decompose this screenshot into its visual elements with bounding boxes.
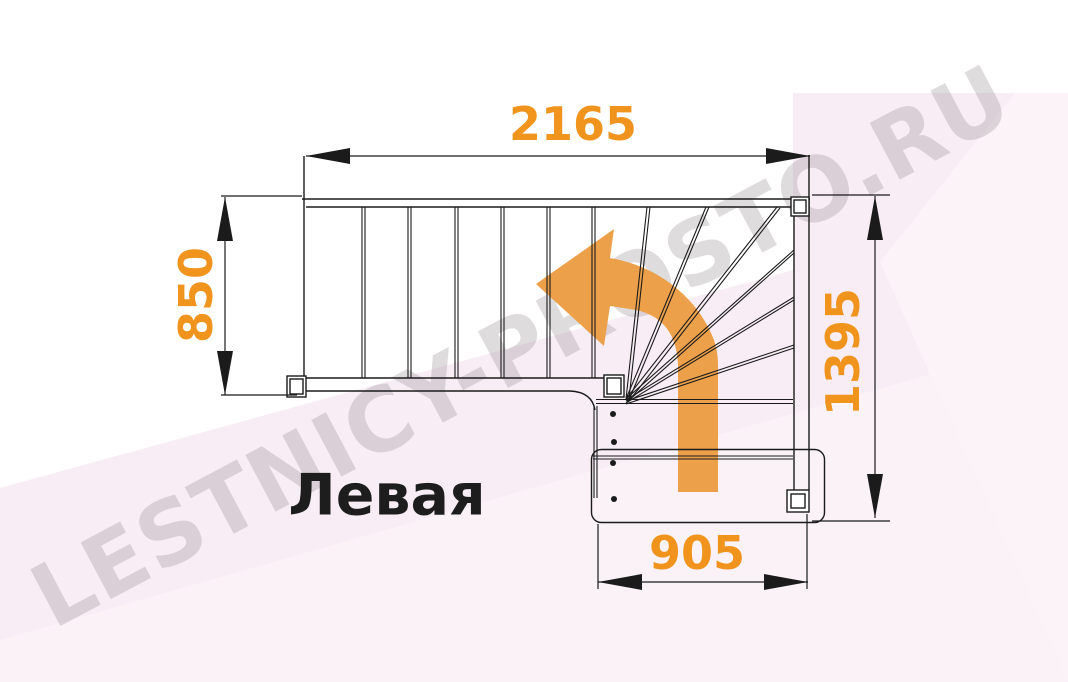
dimension-right-value: 1395 [820, 288, 866, 416]
dimension-top-value: 2165 [509, 101, 637, 147]
dimension-left-value: 850 [173, 247, 219, 343]
dim-arrow-up [217, 197, 233, 241]
dim-arrow-down [217, 351, 233, 395]
plan-title: Левая [288, 468, 485, 525]
newel-post-bottom-right [787, 490, 809, 512]
dim-arrow-left [598, 574, 642, 590]
dim-arrow-up [867, 196, 883, 240]
dim-arrow-left [306, 148, 350, 164]
dimension-bottom-value: 905 [649, 530, 745, 576]
dimension-left-lines [217, 196, 302, 395]
dim-arrow-right [764, 574, 808, 590]
staircase-plan-page: LESTNICY-PROSTO.RU [0, 0, 1068, 682]
dim-arrow-right [766, 148, 810, 164]
dim-arrow-down [867, 474, 883, 518]
upper-flight [302, 155, 810, 492]
